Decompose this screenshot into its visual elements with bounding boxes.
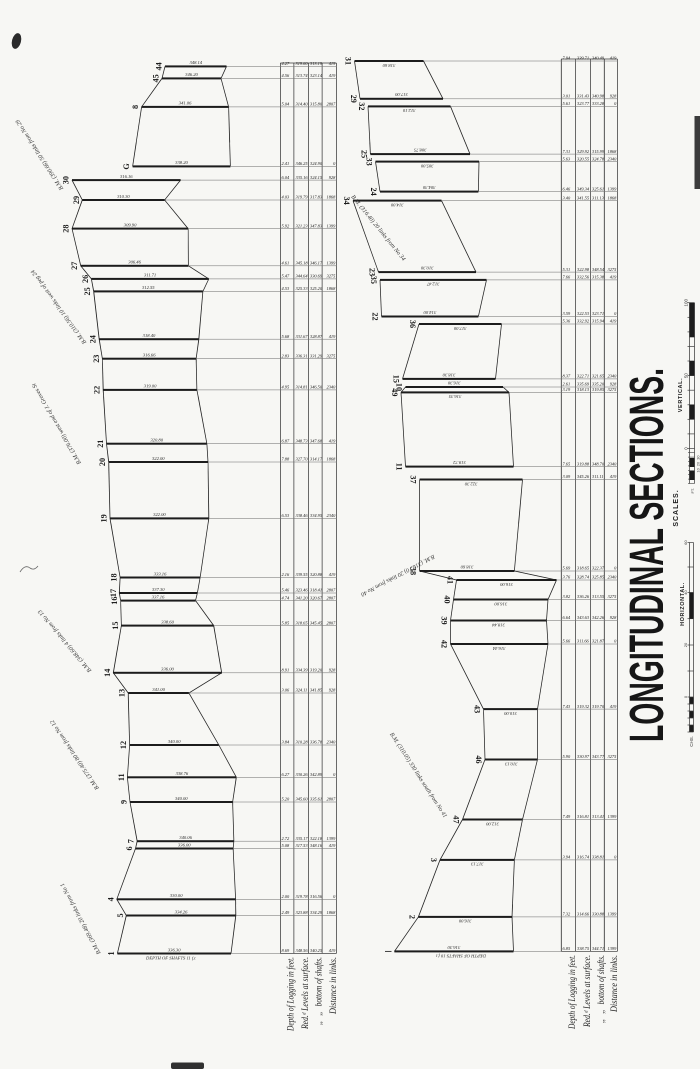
svg-text:2.00: 2.00: [282, 894, 290, 899]
svg-text:330.88: 330.88: [592, 912, 605, 917]
svg-text:327.70: 327.70: [296, 457, 309, 462]
svg-text:344.71: 344.71: [592, 946, 604, 951]
svg-text:11: 11: [394, 463, 403, 471]
svg-text:419: 419: [329, 334, 336, 339]
svg-text:41: 41: [445, 576, 454, 584]
svg-text:3.40: 3.40: [563, 195, 571, 200]
svg-text:30: 30: [62, 176, 71, 184]
svg-text:331.67: 331.67: [296, 334, 309, 339]
svg-text:928: 928: [329, 688, 336, 693]
svg-text:7.31: 7.31: [563, 149, 571, 154]
svg-text:419: 419: [610, 56, 617, 61]
svg-text:2340: 2340: [608, 374, 618, 379]
svg-text:6.85: 6.85: [563, 946, 571, 951]
svg-text:CHS.: CHS.: [689, 736, 694, 747]
svg-text:2340: 2340: [327, 513, 337, 518]
svg-text:928: 928: [610, 615, 617, 620]
svg-text:336.31: 336.31: [296, 353, 308, 358]
svg-text:6.04: 6.04: [282, 175, 290, 180]
svg-text:Red.ᵈ Levels at surface.: Red.ᵈ Levels at surface.: [300, 957, 310, 1030]
svg-text:43: 43: [472, 705, 481, 713]
svg-text:25: 25: [83, 287, 92, 295]
svg-text:419: 419: [329, 572, 336, 577]
svg-text:5.61: 5.61: [563, 101, 571, 106]
svg-text:338.20: 338.20: [175, 160, 188, 165]
svg-text:21: 21: [96, 440, 105, 448]
svg-text:318.30: 318.30: [442, 372, 455, 377]
svg-text:346.50: 346.50: [310, 385, 323, 390]
svg-text:317.53: 317.53: [296, 843, 309, 848]
svg-text:419: 419: [329, 843, 336, 848]
svg-text:319.79: 319.79: [296, 195, 309, 200]
svg-text:318.41: 318.41: [310, 588, 322, 593]
svg-text:1399: 1399: [327, 261, 337, 266]
svg-text:313.55: 313.55: [592, 594, 605, 599]
svg-text:316.44: 316.44: [492, 646, 505, 651]
svg-text:342.26: 342.26: [592, 615, 605, 620]
svg-text:2340: 2340: [608, 461, 618, 466]
svg-text:36: 36: [408, 320, 417, 328]
svg-text:27: 27: [70, 262, 79, 270]
svg-text:33: 33: [364, 158, 373, 166]
svg-text:349.34: 349.34: [577, 186, 590, 191]
svg-text:315.99: 315.99: [592, 149, 605, 154]
svg-text:324.90: 324.90: [310, 161, 323, 166]
svg-text:6: 6: [125, 846, 134, 850]
svg-text:316.56: 316.56: [310, 894, 323, 899]
svg-text:312.10: 312.10: [402, 108, 415, 113]
svg-text:313.74: 313.74: [296, 73, 309, 78]
svg-text:330.00: 330.00: [170, 893, 183, 898]
svg-text:2807: 2807: [327, 102, 337, 107]
svg-text:1399: 1399: [608, 186, 618, 191]
svg-text:324.78: 324.78: [592, 156, 605, 161]
svg-text:319.88: 319.88: [577, 461, 590, 466]
svg-text:332.92: 332.92: [577, 319, 590, 324]
svg-text:312.00: 312.00: [485, 821, 498, 826]
svg-text:5.69: 5.69: [563, 566, 571, 571]
svg-text:4.56: 4.56: [282, 73, 290, 78]
svg-text:3.19: 3.19: [563, 387, 571, 392]
svg-text:2.61: 2.61: [563, 382, 571, 387]
svg-text:49: 49: [390, 388, 399, 396]
svg-text:7.66: 7.66: [563, 275, 571, 280]
svg-text:316.74: 316.74: [577, 855, 590, 860]
svg-text:3.01: 3.01: [563, 94, 571, 99]
svg-text:336.26: 336.26: [577, 594, 590, 599]
svg-text:306.46: 306.46: [128, 260, 141, 265]
svg-text:335.69: 335.69: [577, 382, 590, 387]
svg-text:338.75: 338.75: [577, 946, 590, 951]
svg-text:1868: 1868: [608, 195, 618, 200]
svg-text:37: 37: [408, 475, 417, 483]
svg-text:318.44: 318.44: [491, 622, 504, 627]
svg-text:319.85: 319.85: [592, 387, 605, 392]
svg-text:42: 42: [439, 640, 448, 648]
svg-text:19: 19: [100, 514, 109, 522]
svg-text:9: 9: [120, 800, 129, 804]
svg-text:5.20: 5.20: [282, 797, 290, 802]
svg-text:100: 100: [684, 298, 689, 306]
svg-text:3275: 3275: [608, 594, 618, 599]
svg-text:331.29: 331.29: [310, 353, 323, 358]
svg-text:341.06: 341.06: [179, 101, 192, 106]
svg-text:46: 46: [474, 755, 483, 763]
svg-text:322.18: 322.18: [310, 836, 323, 841]
svg-text:2: 2: [407, 915, 416, 919]
svg-text:346.20: 346.20: [185, 72, 198, 77]
svg-text:333.28: 333.28: [592, 101, 605, 106]
svg-text:319.00: 319.00: [144, 384, 157, 389]
svg-text:8: 8: [131, 105, 140, 109]
svg-text:323.71: 323.71: [592, 311, 604, 316]
svg-text:6.64: 6.64: [563, 615, 571, 620]
svg-text:324.15: 324.15: [310, 175, 323, 180]
svg-text:17: 17: [109, 589, 118, 597]
svg-text:334.39: 334.39: [296, 668, 309, 673]
svg-text:347.68: 347.68: [310, 438, 323, 443]
svg-text:347.83: 347.83: [310, 223, 323, 228]
svg-text:5.68: 5.68: [282, 334, 290, 339]
svg-text:311.11: 311.11: [592, 474, 603, 479]
svg-text:310.13: 310.13: [504, 761, 517, 766]
svg-text:47: 47: [451, 815, 460, 823]
svg-text:928: 928: [610, 94, 617, 99]
svg-text:15: 15: [111, 622, 120, 630]
svg-text:325.33: 325.33: [296, 286, 309, 291]
svg-text:322.53: 322.53: [577, 311, 590, 316]
svg-text:3.09: 3.09: [563, 474, 571, 479]
svg-text:342.89: 342.89: [310, 772, 323, 777]
svg-text:1399: 1399: [327, 223, 337, 228]
svg-text:322.30: 322.30: [464, 481, 477, 486]
svg-text:328.74: 328.74: [577, 575, 590, 580]
svg-text:319.78: 319.78: [296, 894, 309, 899]
svg-text:419: 419: [329, 948, 336, 953]
svg-text:323.77: 323.77: [577, 101, 590, 106]
svg-text:316.00: 316.00: [499, 582, 512, 587]
svg-text:10 20 30: 10 20 30: [697, 456, 700, 473]
svg-text:5.47: 5.47: [282, 274, 290, 279]
svg-text:4.03: 4.03: [282, 195, 290, 200]
svg-text:322.37: 322.37: [592, 566, 605, 571]
svg-text:2340: 2340: [608, 575, 618, 580]
svg-text:323.14: 323.14: [310, 73, 323, 78]
svg-text:328.87: 328.87: [310, 334, 323, 339]
svg-text:348.54: 348.54: [592, 267, 605, 272]
svg-text:5.04: 5.04: [282, 102, 290, 107]
svg-text:343.63: 343.63: [577, 615, 590, 620]
svg-text:318.40: 318.40: [143, 333, 156, 338]
svg-text:Red.ᵈ Levels at surface.: Red.ᵈ Levels at surface.: [582, 955, 592, 1028]
svg-text:310.30: 310.30: [420, 266, 433, 271]
svg-text:39: 39: [439, 616, 448, 624]
svg-text:325.85: 325.85: [592, 575, 605, 580]
svg-text:15: 15: [391, 375, 400, 383]
svg-text:Depth of Logging in feet.: Depth of Logging in feet.: [285, 957, 295, 1032]
svg-text:318.13: 318.13: [577, 387, 590, 392]
svg-text:308.75: 308.75: [413, 148, 426, 153]
svg-text:20: 20: [98, 458, 107, 466]
svg-text:339.55: 339.55: [296, 572, 309, 577]
svg-text:3.06: 3.06: [282, 688, 290, 693]
svg-text:5.85: 5.85: [282, 620, 290, 625]
svg-text:26: 26: [81, 275, 90, 283]
svg-text:321.87: 321.87: [592, 639, 605, 644]
svg-text:6.53: 6.53: [282, 513, 290, 518]
svg-text:322.71: 322.71: [577, 374, 589, 379]
svg-text:2.41: 2.41: [282, 161, 290, 166]
svg-text:7: 7: [127, 839, 136, 843]
svg-text:13: 13: [118, 689, 127, 697]
svg-text:337.30: 337.30: [152, 587, 165, 592]
svg-text:334.26: 334.26: [175, 909, 188, 914]
svg-text:314.00: 314.00: [423, 310, 436, 315]
svg-text:2.72: 2.72: [282, 836, 290, 841]
svg-text:DEPTH OF SHAFTS 11 f.t: DEPTH OF SHAFTS 11 f.t: [145, 956, 196, 961]
svg-text:Depth of Logging in feet.: Depth of Logging in feet.: [567, 955, 577, 1030]
svg-text:3275: 3275: [608, 267, 618, 272]
svg-text:1868: 1868: [608, 149, 618, 154]
svg-text:321.65: 321.65: [592, 374, 605, 379]
svg-text:330.69: 330.69: [310, 274, 323, 279]
svg-text:2807: 2807: [327, 588, 337, 593]
svg-text:318.72: 318.72: [452, 460, 465, 465]
svg-text:3275: 3275: [327, 274, 337, 279]
svg-text:5.36: 5.36: [563, 319, 571, 324]
svg-text:309.90: 309.90: [124, 222, 137, 227]
svg-text:341.55: 341.55: [577, 195, 590, 200]
svg-text:FT.: FT.: [690, 488, 695, 494]
svg-text:345.45: 345.45: [310, 620, 323, 625]
svg-text:340.25: 340.25: [310, 948, 323, 953]
svg-text:5.31: 5.31: [563, 267, 571, 272]
svg-text:324.11: 324.11: [296, 688, 308, 693]
svg-text:315.38: 315.38: [592, 275, 605, 280]
svg-text:317.00: 317.00: [394, 92, 407, 97]
svg-text:3.94: 3.94: [563, 855, 571, 860]
svg-text:24: 24: [89, 335, 98, 343]
svg-text:345.26: 345.26: [577, 474, 590, 479]
svg-text:22: 22: [93, 386, 102, 394]
svg-text:314.17: 314.17: [310, 457, 323, 462]
svg-text:VERTICAL.: VERTICAL.: [678, 378, 684, 412]
svg-text:313.19: 313.19: [310, 61, 323, 66]
svg-text:4.27: 4.27: [282, 61, 290, 66]
svg-text:1399: 1399: [608, 946, 618, 951]
svg-text:3.82: 3.82: [563, 594, 571, 599]
svg-text:311.13: 311.13: [592, 195, 605, 200]
svg-text:419: 419: [610, 319, 617, 324]
svg-text:341.00: 341.00: [152, 687, 165, 692]
svg-text:6.27: 6.27: [282, 772, 290, 777]
svg-text:345.18: 345.18: [296, 261, 309, 266]
svg-text:330.26: 330.26: [296, 772, 309, 777]
svg-text:4.53: 4.53: [282, 286, 290, 291]
svg-text:305.00: 305.00: [420, 163, 433, 168]
svg-text:313.41: 313.41: [592, 814, 604, 819]
svg-text:928: 928: [329, 668, 336, 673]
svg-text:29: 29: [349, 95, 358, 103]
svg-text:1868: 1868: [327, 286, 337, 291]
svg-text:314.40: 314.40: [296, 102, 309, 107]
svg-text:4.95: 4.95: [282, 385, 290, 390]
svg-text:2.16: 2.16: [282, 572, 290, 577]
svg-text:340.00: 340.00: [168, 739, 181, 744]
svg-text:5.90: 5.90: [563, 754, 571, 759]
svg-text:11: 11: [117, 773, 126, 781]
svg-text:316.00: 316.00: [494, 601, 507, 606]
svg-text:3.59: 3.59: [563, 311, 571, 316]
svg-text:335.61: 335.61: [310, 797, 322, 802]
svg-text:3275: 3275: [608, 387, 618, 392]
svg-text:1868: 1868: [327, 910, 337, 915]
svg-text:317.83: 317.83: [310, 195, 323, 200]
svg-text:319.20: 319.20: [310, 668, 323, 673]
svg-text:338.46: 338.46: [296, 513, 309, 518]
svg-text:LONGITUDINAL SECTIONS.: LONGITUDINAL SECTIONS.: [621, 368, 674, 742]
svg-text:2340: 2340: [327, 740, 337, 745]
svg-text:32: 32: [357, 102, 366, 110]
svg-text:348.14: 348.14: [189, 60, 202, 65]
svg-text:320.67: 320.67: [310, 595, 323, 600]
svg-text:332.56: 332.56: [577, 275, 590, 280]
svg-text:322.00: 322.00: [152, 456, 165, 461]
svg-text:Distance in links.: Distance in links.: [328, 957, 338, 1015]
svg-text:341.20: 341.20: [296, 595, 309, 600]
svg-text:315.80: 315.80: [310, 102, 323, 107]
svg-text:44: 44: [155, 62, 164, 70]
svg-text:928: 928: [329, 175, 336, 180]
svg-text:4: 4: [106, 897, 115, 901]
svg-text:316.81: 316.81: [577, 814, 589, 819]
svg-text:3.84: 3.84: [282, 740, 290, 745]
svg-text:6.87: 6.87: [282, 438, 290, 443]
svg-text:5.08: 5.08: [282, 843, 290, 848]
svg-text:320.80: 320.80: [150, 438, 163, 443]
svg-text:29: 29: [72, 196, 81, 204]
svg-text:50: 50: [684, 373, 689, 379]
svg-text:3275: 3275: [327, 353, 337, 358]
svg-text:40: 40: [683, 590, 688, 595]
svg-text:314.81: 314.81: [296, 385, 308, 390]
svg-text:1868: 1868: [327, 195, 337, 200]
svg-text:345.60: 345.60: [296, 797, 309, 802]
svg-text:340.00: 340.00: [175, 796, 188, 801]
svg-text:18: 18: [110, 573, 119, 581]
svg-text:24: 24: [369, 188, 378, 196]
svg-text:325.20: 325.20: [310, 286, 323, 291]
svg-text:2340: 2340: [327, 385, 337, 390]
svg-text:348.73: 348.73: [296, 438, 309, 443]
svg-text:7.88: 7.88: [282, 457, 290, 462]
svg-text:40: 40: [442, 595, 451, 603]
svg-text:,, ,, bottom of shafts.: ,, ,, bottom of shafts.: [314, 957, 324, 1025]
svg-text:310.30: 310.30: [117, 194, 130, 199]
svg-text:311.71: 311.71: [144, 273, 156, 278]
svg-text:7.43: 7.43: [563, 704, 571, 709]
svg-text:348.16: 348.16: [310, 843, 323, 848]
svg-text:5.46: 5.46: [282, 588, 290, 593]
svg-text:419: 419: [610, 275, 617, 280]
svg-text:334.29: 334.29: [310, 910, 323, 915]
svg-text:14: 14: [103, 669, 112, 677]
svg-text:340.49: 340.49: [592, 56, 605, 61]
svg-text:7.32: 7.32: [563, 912, 571, 917]
svg-text:4.61: 4.61: [282, 261, 290, 266]
svg-text:2807: 2807: [327, 620, 337, 625]
svg-text:60: 60: [683, 540, 688, 545]
svg-text:319.70: 319.70: [592, 704, 605, 709]
svg-text:5.66: 5.66: [563, 639, 571, 644]
svg-text:16: 16: [110, 597, 119, 605]
svg-text:318.65: 318.65: [296, 620, 309, 625]
svg-text:341.85: 341.85: [310, 688, 323, 693]
svg-text:322.00: 322.00: [153, 512, 166, 517]
svg-text:325.61: 325.61: [592, 186, 604, 191]
svg-text:331.43: 331.43: [577, 94, 590, 99]
svg-text:316.35: 316.35: [448, 394, 461, 399]
svg-text:3.76: 3.76: [563, 575, 571, 580]
svg-text:338.60: 338.60: [161, 619, 174, 624]
svg-text:45: 45: [152, 74, 161, 82]
svg-text:316.16: 316.16: [120, 174, 133, 179]
svg-text:3275: 3275: [608, 754, 618, 759]
svg-text:31: 31: [343, 57, 352, 65]
svg-text:2.83: 2.83: [282, 353, 290, 358]
svg-text:35: 35: [369, 276, 378, 284]
svg-text:6.46: 6.46: [563, 186, 571, 191]
svg-text:5.92: 5.92: [282, 223, 290, 228]
svg-text:337.16: 337.16: [152, 594, 165, 599]
svg-text:316.00: 316.00: [458, 919, 471, 924]
svg-text:23: 23: [92, 355, 101, 363]
svg-text:12: 12: [119, 741, 128, 749]
svg-text:340.06: 340.06: [179, 835, 192, 840]
svg-text:8.91: 8.91: [282, 668, 290, 673]
svg-text:310.28: 310.28: [296, 740, 309, 745]
svg-text:2.49: 2.49: [282, 910, 290, 915]
svg-text:315.94: 315.94: [592, 319, 605, 324]
svg-text:316.30: 316.30: [447, 945, 460, 950]
svg-text:317.13: 317.13: [470, 862, 483, 867]
svg-text:323.46: 323.46: [296, 588, 309, 593]
svg-text:334.95: 334.95: [310, 513, 323, 518]
svg-text:348.70: 348.70: [592, 461, 605, 466]
svg-text:928: 928: [610, 382, 617, 387]
svg-text:419: 419: [329, 61, 336, 66]
svg-text:318.60: 318.60: [460, 564, 473, 569]
svg-text:HORIZONTAL.: HORIZONTAL.: [680, 582, 686, 626]
svg-text:314.00: 314.00: [390, 202, 403, 207]
svg-text:322.98: 322.98: [577, 267, 590, 272]
svg-text:321.23: 321.23: [296, 223, 309, 228]
svg-text:316.30: 316.30: [447, 380, 460, 385]
svg-text:343.77: 343.77: [592, 754, 605, 759]
svg-text:320.55: 320.55: [577, 156, 590, 161]
svg-text:310.00: 310.00: [503, 711, 516, 716]
svg-text:8.37: 8.37: [563, 374, 571, 379]
svg-text:419: 419: [610, 474, 617, 479]
svg-text:312.47: 312.47: [426, 282, 439, 287]
svg-text:316.66: 316.66: [143, 353, 156, 358]
svg-text:4.74: 4.74: [282, 595, 290, 600]
svg-text:DEPTH OF SHAFTS 10 f.t: DEPTH OF SHAFTS 10 f.t: [435, 954, 487, 959]
svg-text:1399: 1399: [608, 912, 618, 917]
svg-text:419: 419: [329, 438, 336, 443]
svg-text:320.88: 320.88: [310, 572, 323, 577]
svg-text:319.60: 319.60: [296, 61, 309, 66]
